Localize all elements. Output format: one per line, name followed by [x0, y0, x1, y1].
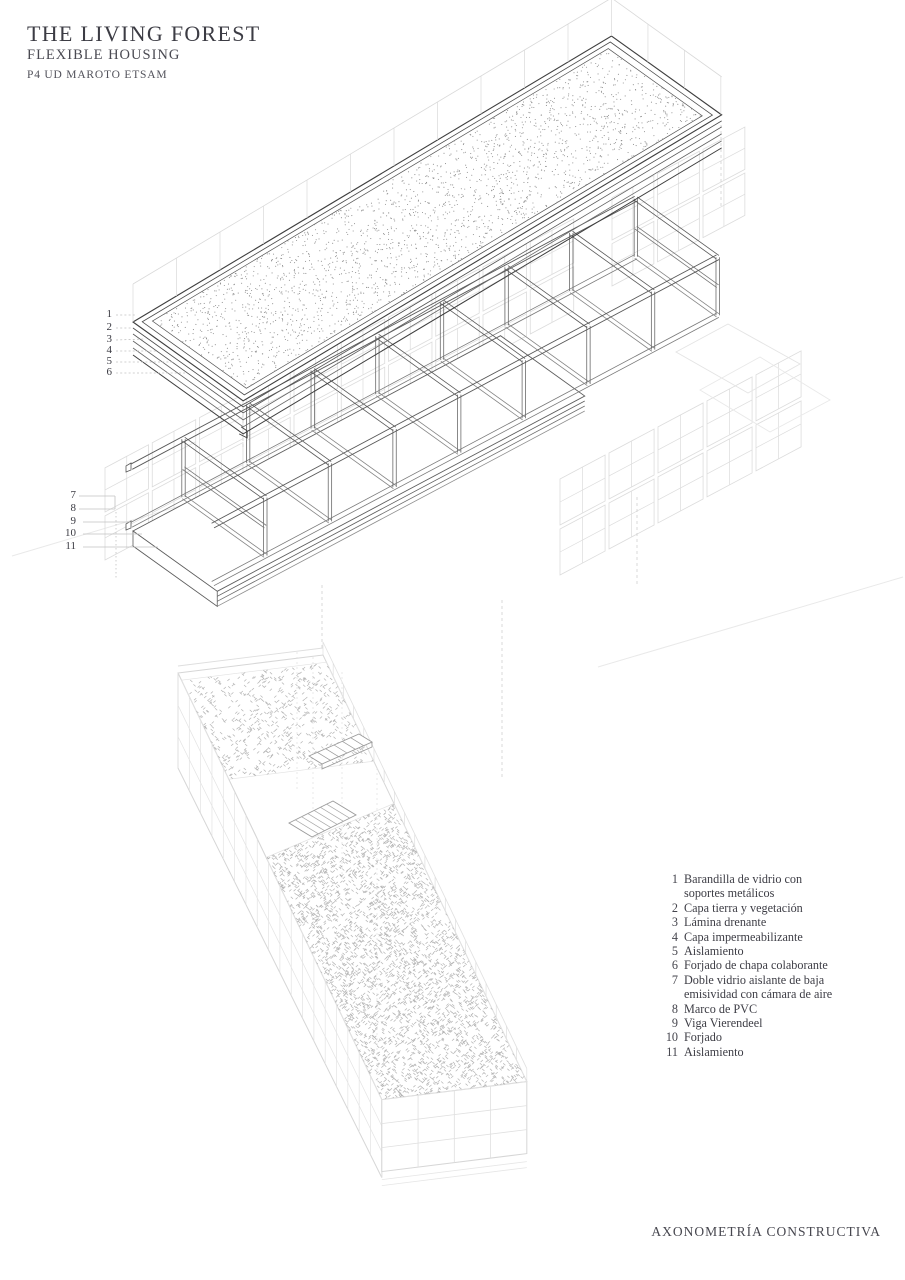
page-title: THE LIVING FOREST — [27, 22, 261, 46]
legend-item: 5Aislamiento — [654, 944, 890, 958]
legend-item: 9Viga Vierendeel — [654, 1016, 890, 1030]
ghost-floor-plates — [676, 324, 830, 432]
ghost-facade-lower-right — [560, 351, 801, 575]
drawing-sheet: THE LIVING FOREST FLEXIBLE HOUSING P4 UD… — [0, 0, 905, 1280]
callout-number: 11 — [46, 541, 76, 552]
legend-item: 8Marco de PVC — [654, 1002, 890, 1016]
callout-number: 6 — [82, 367, 112, 378]
callout-number: 8 — [46, 503, 76, 514]
callout-number: 9 — [46, 516, 76, 527]
truss-layer-callouts: 7 8 9 10 11 — [46, 490, 76, 555]
legend-item: 7Doble vidrio aislante de baja emisivida… — [654, 973, 890, 1002]
lower-building — [178, 642, 527, 1186]
legend-item: 11Aislamiento — [654, 1045, 890, 1059]
callout-number: 7 — [46, 490, 76, 501]
title-block: THE LIVING FOREST FLEXIBLE HOUSING P4 UD… — [27, 22, 261, 84]
legend-item: 10Forjado — [654, 1030, 890, 1044]
roof-layer-callouts: 1 2 3 4 5 6 — [82, 309, 112, 379]
callout-number: 2 — [82, 322, 112, 333]
axonometric-drawing — [0, 0, 905, 1280]
legend-item: 6Forjado de chapa colaborante — [654, 958, 890, 972]
sheet-caption: AXONOMETRÍA CONSTRUCTIVA — [651, 1224, 881, 1240]
page-subtitle: FLEXIBLE HOUSING — [27, 46, 261, 65]
project-label: P4 UD MAROTO ETSAM — [27, 67, 261, 84]
legend-item: 3Lámina drenante — [654, 915, 890, 929]
construction-legend: 1Barandilla de vidrio con soportes metál… — [654, 872, 890, 1059]
callout-number: 10 — [46, 528, 76, 539]
callout-number: 1 — [82, 309, 112, 320]
legend-item: 4Capa impermeabilizante — [654, 930, 890, 944]
legend-item: 1Barandilla de vidrio con soportes metál… — [654, 872, 890, 901]
legend-item: 2Capa tierra y vegetación — [654, 901, 890, 915]
